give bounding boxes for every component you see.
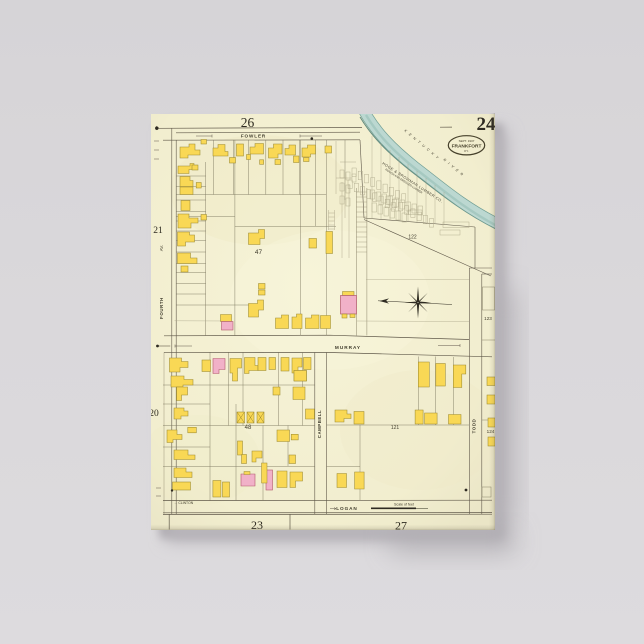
svg-text:SEPT. 1907: SEPT. 1907 xyxy=(459,139,475,143)
svg-text:Scale of feet: Scale of feet xyxy=(394,503,414,507)
svg-text:TODD: TODD xyxy=(472,419,477,434)
svg-text:LOGAN: LOGAN xyxy=(336,506,357,511)
svg-text:121: 121 xyxy=(391,425,400,431)
svg-text:26: 26 xyxy=(241,115,255,130)
svg-text:FOURTH: FOURTH xyxy=(159,297,164,319)
svg-text:→ CLINTON: → CLINTON xyxy=(174,501,194,505)
svg-text:47: 47 xyxy=(255,249,263,256)
svg-text:48: 48 xyxy=(245,425,252,431)
svg-text:21: 21 xyxy=(153,226,163,236)
svg-text:FOWLER: FOWLER xyxy=(241,133,266,138)
svg-text:MURRAY: MURRAY xyxy=(335,345,361,350)
svg-text:KY.: KY. xyxy=(464,149,469,153)
svg-text:AV.: AV. xyxy=(159,245,164,251)
svg-text:CAMPBELL: CAMPBELL xyxy=(317,410,322,438)
